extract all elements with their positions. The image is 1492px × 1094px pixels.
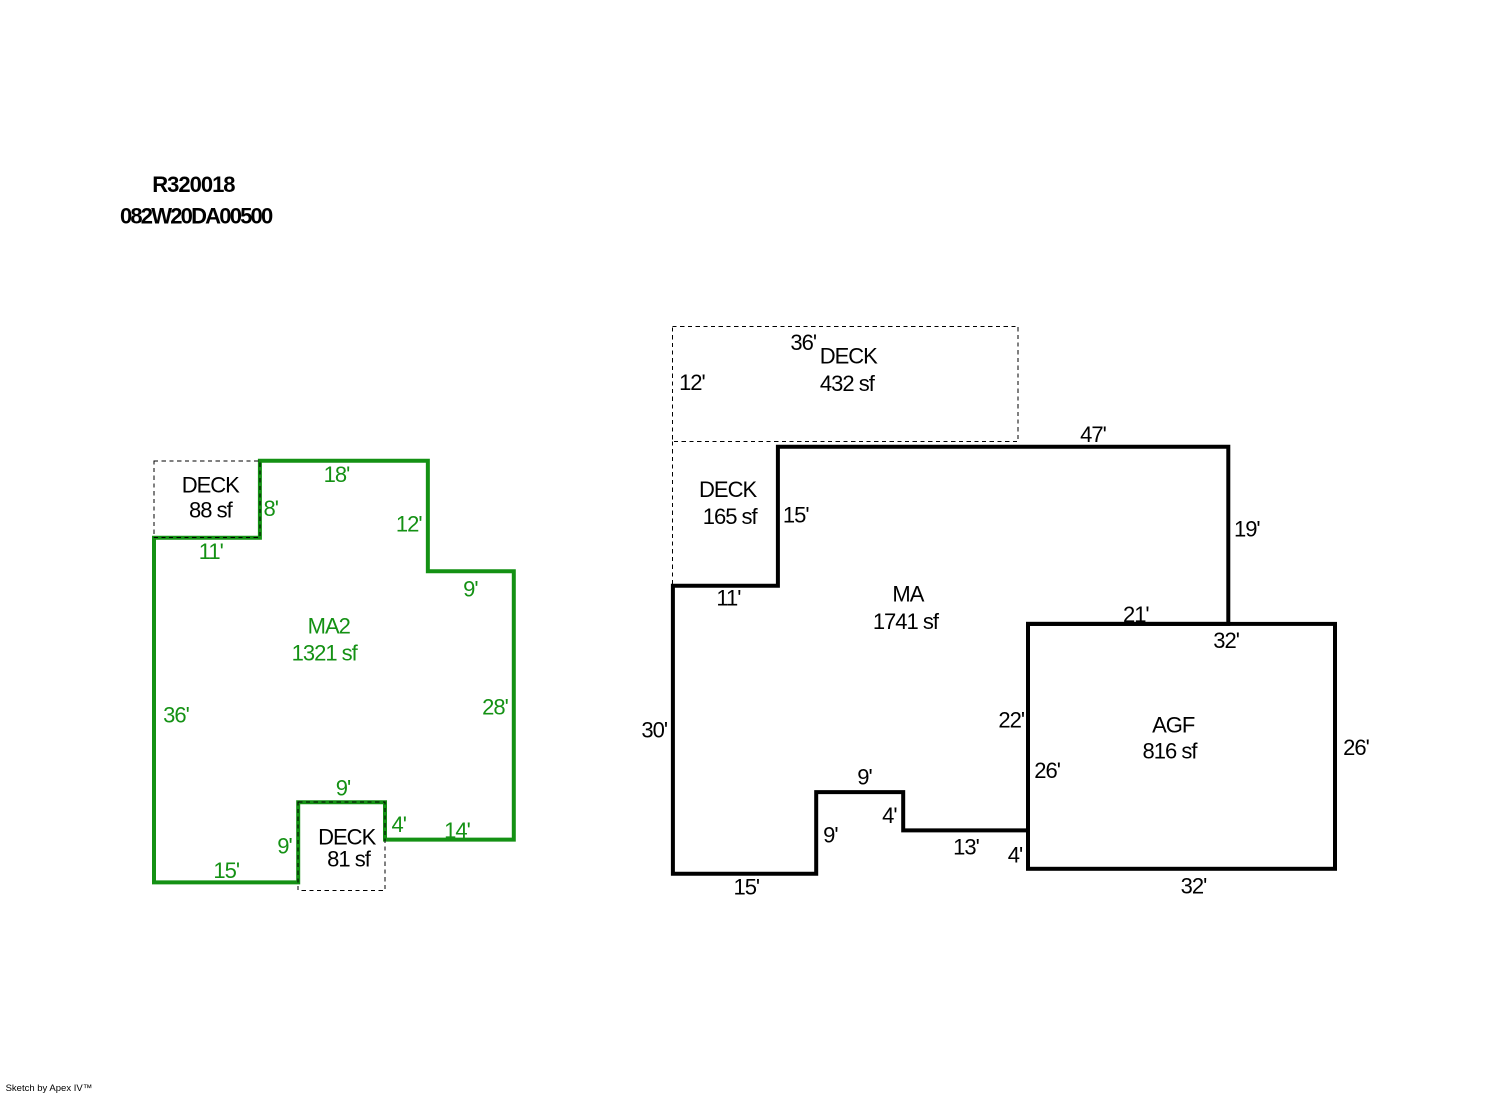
- svg-text:30': 30': [641, 718, 667, 743]
- svg-text:32': 32': [1213, 628, 1239, 653]
- svg-text:4': 4': [391, 812, 406, 837]
- svg-text:165 sf: 165 sf: [703, 504, 759, 529]
- svg-text:DECK: DECK: [699, 477, 757, 502]
- svg-text:11': 11': [199, 539, 224, 564]
- svg-text:47': 47': [1080, 422, 1106, 447]
- svg-text:DECK: DECK: [820, 344, 878, 369]
- svg-text:4': 4': [882, 803, 897, 828]
- svg-text:81 sf: 81 sf: [327, 846, 372, 871]
- svg-text:8': 8': [263, 496, 278, 521]
- svg-text:12': 12': [396, 512, 422, 537]
- svg-text:9': 9': [857, 765, 872, 790]
- svg-text:26': 26': [1343, 735, 1369, 760]
- svg-text:Sketch by Apex IV™: Sketch by Apex IV™: [6, 1083, 93, 1094]
- svg-text:R320018: R320018: [152, 172, 235, 197]
- svg-text:082W20DA00500: 082W20DA00500: [120, 204, 273, 229]
- svg-text:19': 19': [1234, 517, 1260, 542]
- svg-text:816 sf: 816 sf: [1143, 738, 1199, 763]
- svg-text:DECK: DECK: [182, 472, 240, 497]
- svg-text:11': 11': [716, 585, 741, 610]
- svg-text:88 sf: 88 sf: [189, 497, 234, 522]
- svg-text:36': 36': [790, 330, 816, 355]
- svg-text:9': 9': [277, 833, 292, 858]
- svg-text:28': 28': [482, 695, 508, 720]
- svg-text:12': 12': [679, 370, 705, 395]
- svg-text:15': 15': [783, 503, 809, 528]
- svg-text:1321 sf: 1321 sf: [292, 641, 359, 666]
- svg-text:32': 32': [1181, 873, 1207, 898]
- svg-text:MA: MA: [892, 582, 924, 607]
- svg-text:9': 9': [336, 776, 351, 801]
- svg-text:22': 22': [998, 708, 1024, 733]
- svg-text:9': 9': [823, 822, 838, 847]
- svg-text:AGF: AGF: [1152, 713, 1195, 738]
- svg-text:9': 9': [463, 576, 478, 601]
- svg-text:18': 18': [324, 462, 350, 487]
- svg-text:MA2: MA2: [308, 614, 351, 639]
- svg-text:21': 21': [1123, 602, 1149, 627]
- svg-text:1741 sf: 1741 sf: [873, 609, 940, 634]
- svg-text:432 sf: 432 sf: [820, 371, 876, 396]
- svg-text:15': 15': [213, 858, 239, 883]
- svg-text:13': 13': [953, 835, 979, 860]
- svg-text:15': 15': [733, 875, 759, 900]
- svg-text:36': 36': [163, 703, 189, 728]
- svg-text:4': 4': [1008, 842, 1023, 867]
- svg-text:26': 26': [1034, 758, 1060, 783]
- svg-text:14': 14': [444, 818, 470, 843]
